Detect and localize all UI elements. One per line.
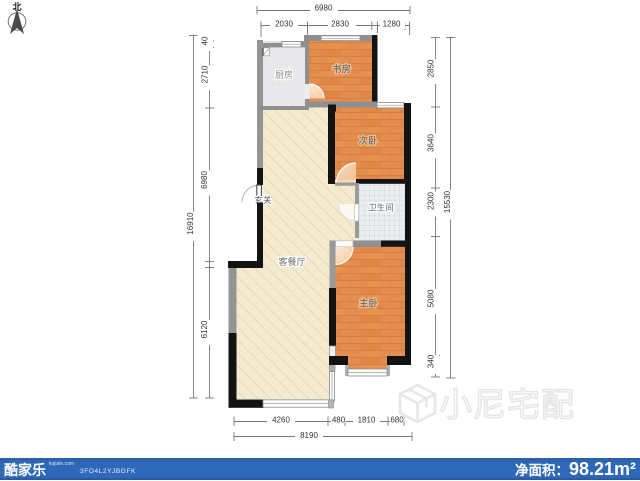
svg-text:680: 680 <box>390 416 404 425</box>
svg-text:40: 40 <box>201 36 210 45</box>
svg-text:2830: 2830 <box>331 19 349 28</box>
svg-text:480: 480 <box>332 416 346 425</box>
svg-text:340: 340 <box>427 354 436 368</box>
svg-text:8190: 8190 <box>300 431 318 440</box>
svg-text:客餐厅: 客餐厅 <box>278 256 305 267</box>
svg-text:主卧: 主卧 <box>359 298 379 310</box>
svg-text:1810: 1810 <box>358 416 376 425</box>
svg-text:4260: 4260 <box>272 416 290 425</box>
svg-text:6980: 6980 <box>200 171 209 189</box>
svg-text:次卧: 次卧 <box>358 135 378 147</box>
svg-text:5080: 5080 <box>427 289 436 307</box>
svg-text:2710: 2710 <box>201 65 210 83</box>
svg-text:1280: 1280 <box>383 19 401 28</box>
svg-text:15530: 15530 <box>443 190 452 213</box>
svg-text:书房: 书房 <box>332 64 351 76</box>
svg-text:16910: 16910 <box>186 212 195 235</box>
svg-text:卫生间: 卫生间 <box>368 203 394 213</box>
svg-text:6120: 6120 <box>200 320 209 338</box>
svg-text:2300: 2300 <box>427 192 436 210</box>
svg-text:小尼宅配: 小尼宅配 <box>439 386 575 423</box>
svg-text:6980: 6980 <box>315 3 333 12</box>
svg-text:2030: 2030 <box>275 19 293 28</box>
svg-text:2850: 2850 <box>427 59 436 77</box>
svg-text:厨房: 厨房 <box>275 69 293 80</box>
svg-text:3640: 3640 <box>427 134 436 152</box>
